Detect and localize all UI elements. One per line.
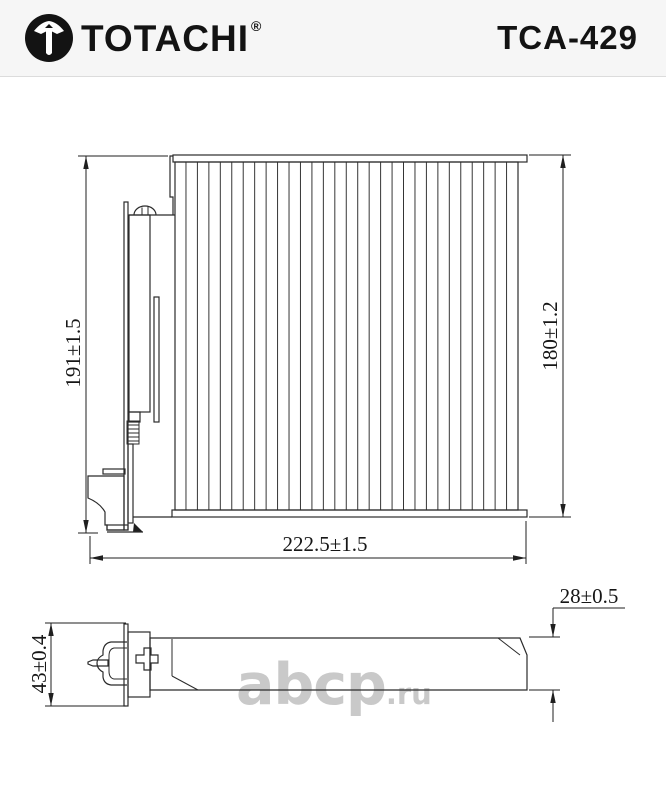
bracket-foot xyxy=(133,523,143,532)
pin xyxy=(88,660,108,666)
header-bar: TOTACHI ® TCA-429 xyxy=(0,0,666,77)
dim-label-180: 180±1.2 xyxy=(538,301,562,370)
cross-boss xyxy=(136,648,158,670)
dimension-side-height: 43±0.4 xyxy=(27,623,126,706)
bracket-spring xyxy=(127,421,139,444)
bracket-claw xyxy=(88,476,124,530)
logo-t-icon xyxy=(24,13,74,63)
dim-label-191: 191±1.5 xyxy=(61,318,85,387)
mounting-bracket xyxy=(88,156,175,532)
side-connector xyxy=(128,632,150,697)
part-number: TCA-429 xyxy=(497,19,638,57)
side-view: 43±0.4 28±0.5 xyxy=(27,584,625,722)
brand-logo: TOTACHI ® xyxy=(24,13,261,63)
bracket-rib xyxy=(154,297,159,422)
drawing-canvas: 191±1.5 180±1.2 222.5±1.5 xyxy=(0,0,666,800)
registered-mark: ® xyxy=(251,18,261,34)
top-cap xyxy=(173,155,527,162)
pleated-media xyxy=(175,162,518,510)
brand-text: TOTACHI xyxy=(81,20,249,57)
side-body xyxy=(150,638,527,690)
bottom-cap xyxy=(172,510,527,517)
front-view: 191±1.5 180±1.2 222.5±1.5 xyxy=(61,155,571,564)
dimension-front-height-right: 180±1.2 xyxy=(529,155,571,517)
dimension-front-width: 222.5±1.5 xyxy=(90,521,526,564)
end-cap xyxy=(88,642,127,685)
dim-label-222: 222.5±1.5 xyxy=(282,532,367,556)
dim-label-28: 28±0.5 xyxy=(560,584,619,608)
dim-label-43: 43±0.4 xyxy=(27,634,51,693)
bracket-dome xyxy=(134,206,156,215)
dimension-side-thickness: 28±0.5 xyxy=(529,584,625,722)
